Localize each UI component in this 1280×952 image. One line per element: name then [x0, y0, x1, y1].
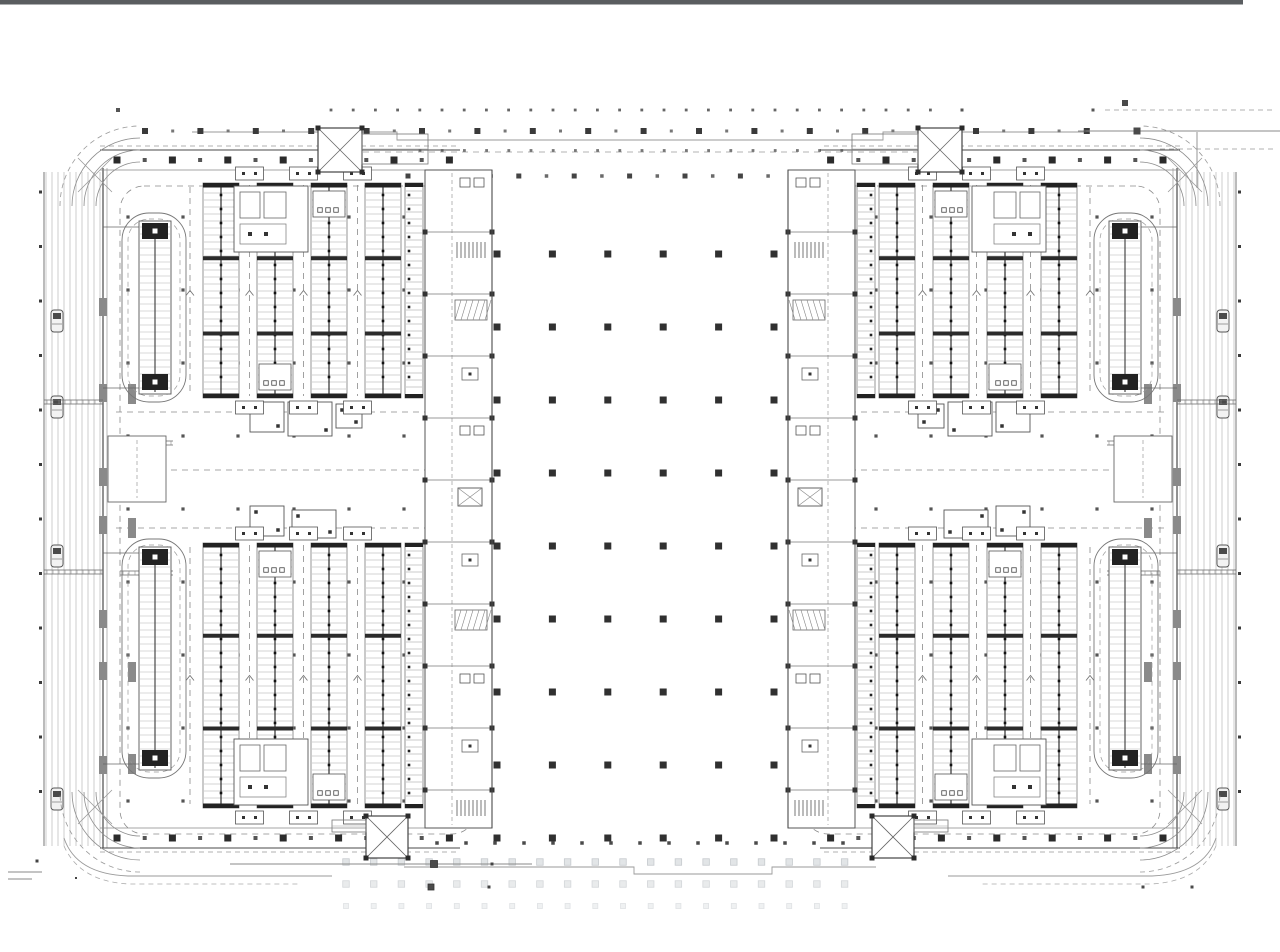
ramp-racetrack: [103, 539, 186, 778]
equipment-room: [972, 186, 1046, 252]
car-symbols: [51, 310, 63, 810]
service-core-band: [423, 170, 495, 828]
ramp-racetrack: [1094, 213, 1177, 402]
rack-band-single: [857, 183, 875, 398]
equipment-room: [972, 739, 1046, 805]
rack-band-single: [857, 543, 875, 808]
perimeter-band: [100, 146, 460, 170]
ramp-racetrack: [103, 213, 186, 402]
rack-block: [103, 527, 423, 824]
right-wing: [786, 126, 1242, 885]
top-bar: [0, 0, 1243, 5]
service-core-band: [786, 170, 858, 828]
rack-band-single: [405, 543, 423, 808]
rack-band-single: [405, 183, 423, 398]
outer-road-stripes: [1180, 172, 1241, 846]
rack-block: [857, 167, 1177, 414]
car-symbols: [1217, 310, 1229, 810]
faded-dot-rows: [343, 859, 848, 909]
rack-band: [365, 543, 401, 808]
rack-band: [365, 183, 401, 398]
perimeter-band: [820, 146, 1180, 170]
left-wing: [39, 126, 495, 885]
equipment-room: [234, 739, 308, 805]
rack-band: [879, 183, 915, 398]
outer-road-stripes: [39, 172, 100, 846]
rack-band: [311, 543, 347, 808]
floor-plan-canvas: [0, 0, 1280, 952]
rack-band: [879, 543, 915, 808]
rack-band: [933, 543, 969, 808]
rack-block: [103, 167, 423, 414]
ramp-racetrack: [1094, 539, 1177, 778]
equipment-room: [234, 186, 308, 252]
rack-block: [857, 527, 1177, 824]
floor-plan-page: [0, 0, 1280, 952]
